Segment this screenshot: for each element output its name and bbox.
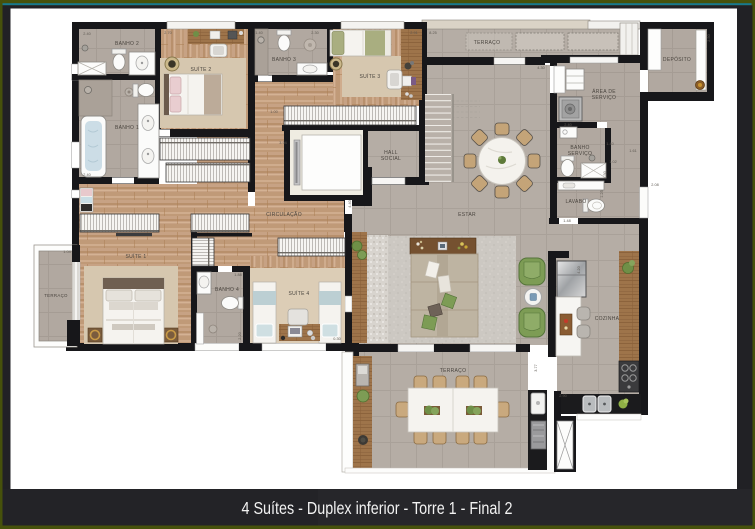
- svg-text:2.08: 2.08: [651, 183, 658, 187]
- svg-text:BANHO 4: BANHO 4: [215, 287, 239, 293]
- svg-text:1.00: 1.00: [270, 110, 277, 114]
- svg-text:2.40: 2.40: [83, 32, 90, 36]
- svg-text:SUÍTE 1: SUÍTE 1: [126, 253, 147, 260]
- svg-text:BANHO 2: BANHO 2: [115, 41, 139, 47]
- svg-text:3.94: 3.94: [279, 141, 286, 145]
- svg-text:1.48: 1.48: [563, 219, 570, 223]
- svg-text:SERVIÇO: SERVIÇO: [592, 95, 617, 101]
- svg-text:ÁREA DE: ÁREA DE: [592, 88, 616, 95]
- svg-text:1.40: 1.40: [255, 31, 262, 35]
- svg-text:SUÍTE 2: SUÍTE 2: [191, 66, 212, 73]
- svg-text:SUÍTE 3: SUÍTE 3: [360, 73, 381, 80]
- svg-text:8.25: 8.25: [429, 31, 436, 35]
- svg-text:ESTAR: ESTAR: [458, 212, 476, 218]
- svg-text:2.40: 2.40: [564, 123, 571, 127]
- svg-text:1.04: 1.04: [63, 250, 70, 254]
- svg-text:1.25: 1.25: [600, 190, 604, 197]
- svg-text:SOCIAL: SOCIAL: [381, 156, 401, 162]
- svg-text:1.50: 1.50: [603, 171, 607, 178]
- svg-text:2.20: 2.20: [238, 332, 242, 339]
- svg-text:4 Suítes - Duplex inferior - T: 4 Suítes - Duplex inferior - Torre 1 - F…: [242, 498, 513, 518]
- svg-text:3.77: 3.77: [534, 364, 538, 371]
- svg-text:4.20: 4.20: [577, 266, 581, 273]
- svg-text:COZINHA: COZINHA: [595, 316, 620, 322]
- svg-text:2.70: 2.70: [164, 31, 171, 35]
- svg-text:SUÍTE 4: SUÍTE 4: [289, 290, 310, 297]
- svg-text:0.30: 0.30: [333, 337, 340, 341]
- svg-text:SERVIÇO: SERVIÇO: [568, 151, 593, 157]
- svg-text:2.90: 2.90: [559, 394, 566, 398]
- svg-text:TERRAÇO: TERRAÇO: [440, 368, 467, 374]
- svg-text:2.91: 2.91: [410, 31, 417, 35]
- svg-text:1.61: 1.61: [629, 149, 636, 153]
- svg-text:1.02: 1.02: [609, 160, 616, 164]
- svg-text:2.50: 2.50: [707, 34, 711, 41]
- svg-text:DEPÓSITO: DEPÓSITO: [663, 56, 691, 63]
- svg-text:TERRAÇO: TERRAÇO: [44, 293, 68, 298]
- svg-text:CIRCULAÇÃO: CIRCULAÇÃO: [266, 211, 302, 218]
- svg-text:2.30: 2.30: [311, 31, 318, 35]
- svg-text:4.30: 4.30: [537, 66, 544, 70]
- svg-text:BANHO 1: BANHO 1: [115, 125, 139, 131]
- svg-text:4.40: 4.40: [348, 200, 352, 207]
- svg-text:1.40: 1.40: [606, 142, 613, 146]
- svg-text:BANHO 3: BANHO 3: [272, 57, 296, 63]
- svg-text:2.40: 2.40: [83, 173, 90, 177]
- svg-text:1.88: 1.88: [234, 273, 241, 277]
- svg-text:TERRAÇO: TERRAÇO: [474, 40, 501, 46]
- svg-text:LAVABO: LAVABO: [565, 199, 586, 205]
